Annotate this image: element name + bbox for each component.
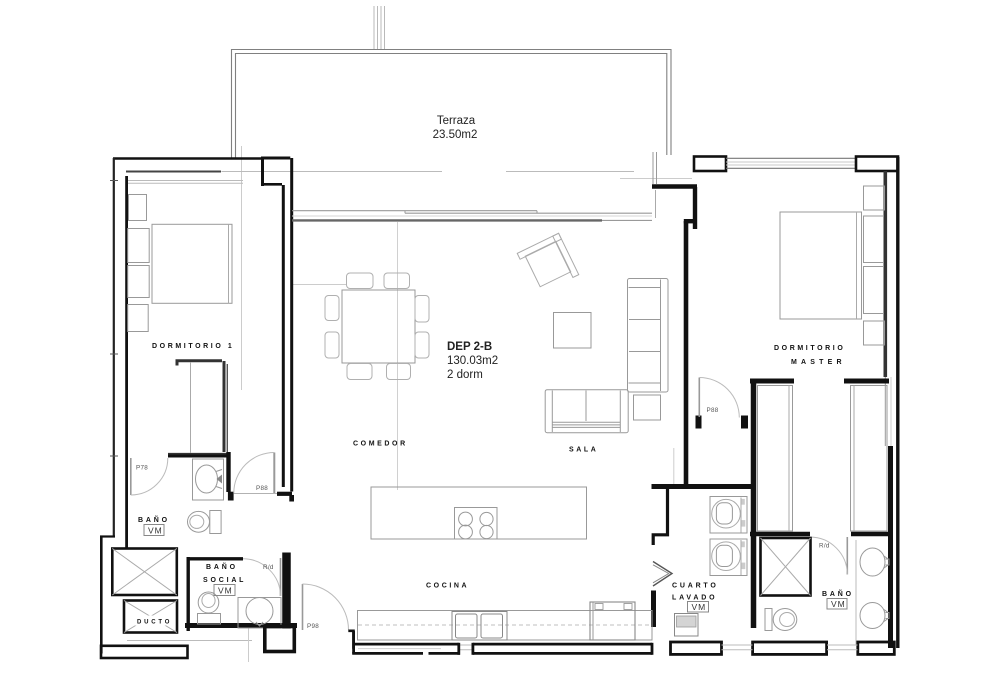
svg-text:VM: VM — [692, 602, 707, 612]
svg-text:COMEDOR: COMEDOR — [353, 441, 408, 448]
svg-text:P98: P98 — [307, 623, 319, 630]
svg-text:R/d: R/d — [263, 564, 274, 571]
svg-text:DEP 2-B: DEP 2-B — [447, 341, 492, 353]
svg-text:CUARTO: CUARTO — [672, 583, 719, 590]
svg-text:23.50m2: 23.50m2 — [433, 129, 478, 141]
svg-text:VM: VM — [831, 599, 846, 609]
svg-text:LAVADO: LAVADO — [672, 595, 717, 602]
svg-text:130.03m2: 130.03m2 — [447, 355, 498, 367]
svg-text:2 dorm: 2 dorm — [447, 369, 483, 381]
svg-text:DORMITORIO: DORMITORIO — [774, 345, 845, 352]
svg-text:SALA: SALA — [569, 447, 598, 454]
svg-text:BAÑO: BAÑO — [822, 589, 854, 598]
svg-text:DORMITORIO 1: DORMITORIO 1 — [152, 343, 234, 350]
svg-text:BAÑO: BAÑO — [138, 515, 170, 524]
svg-text:P78: P78 — [136, 465, 148, 472]
svg-text:R/d: R/d — [819, 543, 830, 550]
svg-text:DUCTO: DUCTO — [137, 620, 172, 626]
svg-text:BAÑO: BAÑO — [206, 562, 238, 571]
svg-text:SOCIAL: SOCIAL — [203, 577, 246, 584]
svg-text:VM: VM — [148, 526, 163, 536]
svg-text:MASTER: MASTER — [791, 359, 846, 366]
svg-text:P88: P88 — [707, 407, 719, 414]
svg-text:COCINA: COCINA — [426, 583, 469, 590]
svg-text:P88: P88 — [256, 485, 268, 492]
svg-text:Terraza: Terraza — [437, 115, 476, 127]
svg-text:VM: VM — [218, 586, 233, 596]
